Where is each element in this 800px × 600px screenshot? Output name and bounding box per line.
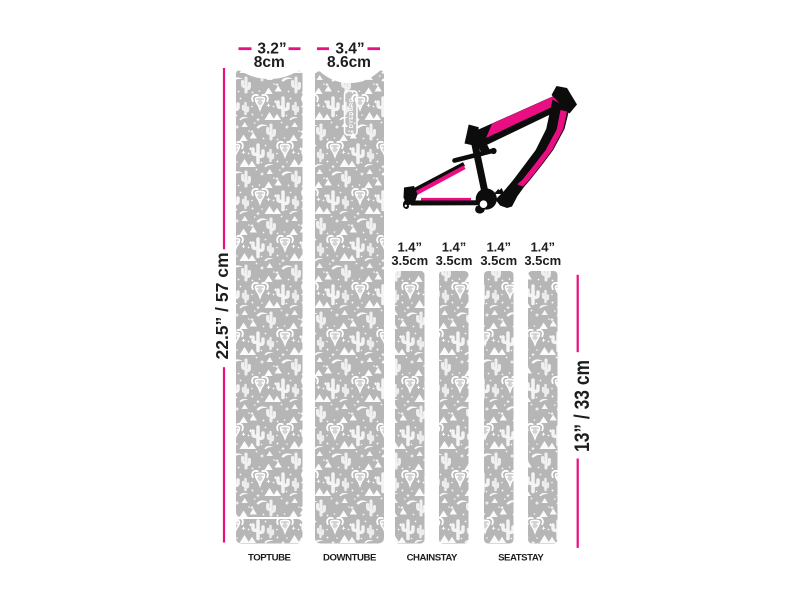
svg-text:DOWNTUBE: DOWNTUBE [323,553,377,564]
svg-text:8cm: 8cm [254,54,285,71]
svg-text:3.5cm: 3.5cm [436,253,473,268]
svg-text:22.5” / 57 cm: 22.5” / 57 cm [212,252,232,359]
svg-text:DYEDBRO: DYEDBRO [349,98,355,129]
svg-text:CHAINSTAY: CHAINSTAY [407,553,458,564]
svg-text:8.6cm: 8.6cm [327,54,371,71]
svg-text:3.5cm: 3.5cm [480,253,517,268]
svg-text:3.5cm: 3.5cm [524,253,561,268]
svg-text:SEATSTAY: SEATSTAY [498,553,544,564]
svg-text:3.5cm: 3.5cm [391,253,428,268]
svg-text:13” / 33 cm: 13” / 33 cm [570,360,594,452]
svg-text:TOPTUBE: TOPTUBE [248,553,292,564]
